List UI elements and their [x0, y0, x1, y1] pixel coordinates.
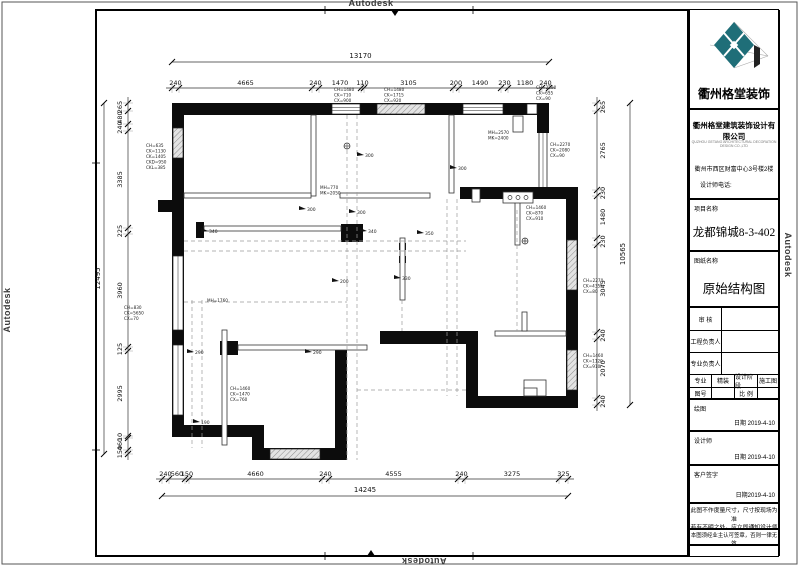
stage-label: 设计阶段 [735, 374, 758, 387]
designer-date: 日期 2019-4-10 [734, 452, 775, 461]
window-label: CK=1715 [384, 93, 404, 98]
watermark-left: Autodesk [2, 280, 12, 340]
beam-label: 300 [458, 166, 467, 172]
dim-text: 4665 [237, 79, 254, 87]
dim-text: 230 [599, 187, 607, 199]
dim-text: 3275 [504, 470, 521, 478]
dim-text: 150 [116, 446, 124, 458]
dim-text: 240 [116, 121, 124, 133]
dim-text: 230 [498, 79, 510, 87]
dim-chain-top: 2404665240147011031052001490230118024013… [166, 52, 555, 93]
signature-table: 审 核 工程负责人 专业负责人 专业 精装 设计阶段 施工图 图号 比 例 [690, 308, 778, 400]
dim-text: 325 [557, 470, 569, 478]
window-label: CX=910 [583, 364, 601, 369]
beam-label: 300 [357, 210, 366, 216]
dim-text: 200 [450, 79, 462, 87]
dim-text: 12495 [94, 267, 102, 289]
window-label: CX=900 [334, 98, 352, 103]
dim-text: 14245 [354, 486, 376, 494]
beam-lines [184, 115, 517, 460]
window-label: CH=2270 [550, 142, 571, 147]
dim-text: 3385 [116, 171, 124, 188]
scale-value [758, 387, 778, 400]
dim-text: 13170 [349, 52, 371, 60]
dim-text: 240 [455, 470, 467, 478]
drawing-name-section: 图纸名称 原始结构图 [690, 252, 778, 308]
watermark-right: Autodesk [783, 225, 793, 285]
designer-label: 设计师 [694, 436, 712, 445]
draft-date: 日期 2019-4-10 [734, 418, 775, 427]
dim-text: 150 [181, 470, 193, 478]
window-label: CX=90 [536, 96, 551, 101]
note-line-3: 本图须经业主认可签章，否则一律无效 [690, 530, 778, 548]
draft-label: 绘图 [694, 404, 706, 413]
window-label: CK=655 [536, 91, 554, 96]
window-label: CH=635 [146, 143, 164, 148]
dim-text: 2995 [116, 385, 124, 402]
dim-text: 110 [356, 79, 368, 87]
window-label: CH=1480 [384, 87, 405, 92]
dim-text: 1470 [332, 79, 349, 87]
dim-text: 2765 [599, 142, 607, 159]
window-label: CKD=950 [146, 160, 167, 165]
window-label: CX=90 [550, 153, 565, 158]
major-label: 专业 [690, 374, 712, 387]
beam-label: 190 [201, 420, 210, 426]
beam-label: 340 [209, 229, 218, 235]
window-label: CH=1460 [526, 205, 547, 210]
stage-value: 施工图 [758, 374, 778, 387]
window-label: CH=1480 [334, 87, 355, 92]
beam-label: 300 [365, 153, 374, 159]
review-label: 审 核 [690, 308, 722, 330]
window-label: CH=2290 [536, 85, 557, 90]
drawing-sheet: 2404665240147011031052001490230118024013… [0, 0, 800, 567]
beam-label: 300 [307, 207, 316, 213]
window-label: CH=2270 [583, 278, 604, 283]
top-border-marker-icon [391, 10, 399, 16]
dim-text: 1180 [517, 79, 534, 87]
dim-text: 3105 [400, 79, 417, 87]
dim-text: 125 [116, 343, 124, 355]
company-address: 衢州市西区财富中心3号楼2楼 [690, 164, 778, 173]
drain-symbol-icon [522, 238, 528, 244]
dim-text: 225 [116, 225, 124, 237]
note-line-1: 此图不作度量尺寸，尺寸按现场为准 [690, 507, 778, 524]
client-sign-section: 客户签字 日期2019-4-10 [690, 466, 778, 504]
designer-section: 设计师 日期 2019-4-10 [690, 432, 778, 466]
company-section: 衢州格堂建筑装饰设计有限公司 QUZHOU GETANG ARCHITECTUR… [690, 110, 778, 200]
dim-chain-left: 2654802403385225396012529951046015012495 [94, 97, 133, 460]
window-label: CK=870 [526, 211, 544, 216]
major-value: 精装 [712, 374, 735, 387]
draft-section: 绘图 日期 2019-4-10 [690, 400, 778, 432]
window-label: MK=2400 [488, 136, 509, 141]
window-label: CK=4355 [583, 284, 603, 289]
window-label: MH=1760 [207, 298, 228, 303]
dim-chain-bottom: 24056015046602404555240327532514245 [156, 470, 574, 499]
brand-name: 衢州格堂装饰 [690, 85, 778, 102]
window-label: CK=1470 [230, 392, 250, 397]
window-label: CX=910 [526, 216, 544, 221]
beam-label: 350 [425, 231, 434, 237]
window-label: CK=2080 [550, 148, 570, 153]
dim-text: 1490 [472, 79, 489, 87]
project-name: 龙都锦城8-3-402 [690, 224, 778, 240]
dim-text: 230 [599, 235, 607, 247]
project-section: 项目名称 龙都锦城8-3-402 [690, 200, 778, 252]
title-block: 衢州格堂装饰 衢州格堂建筑装饰设计有限公司 QUZHOU GETANG ARCH… [688, 10, 780, 556]
window-label: CX=70 [124, 316, 139, 321]
note-section-1: 此图不作度量尺寸，尺寸按现场为准 若有不明之处，应立即通知设计师 [690, 504, 778, 530]
drawing-label: 图纸名称 [694, 256, 718, 265]
window-label: CKL=385 [146, 165, 166, 170]
window-label: CK=1120 [583, 359, 603, 364]
window-label: CK=1405 [146, 154, 166, 159]
dim-text: 240 [599, 329, 607, 341]
pm-label: 工程负责人 [690, 330, 722, 352]
window-label: CH=1460 [230, 386, 251, 391]
lead-label: 专业负责人 [690, 352, 722, 374]
dim-text: 1480 [599, 209, 607, 226]
company-name-en: QUZHOU GETANG ARCHITECTURAL DECORATION D… [690, 140, 778, 148]
drawing-name: 原始结构图 [690, 278, 778, 297]
floor-plan-canvas: 2404665240147011031052001490230118024013… [0, 0, 800, 567]
company-logo [690, 12, 778, 78]
logo-section: 衢州格堂装饰 [690, 10, 778, 110]
window-label: MK=2050 [320, 191, 341, 196]
company-name: 衢州格堂建筑装饰设计有限公司 [690, 120, 778, 142]
dim-text: 240 [169, 79, 181, 87]
beam-label: 290 [195, 350, 204, 356]
client-sign-date: 日期2019-4-10 [736, 490, 775, 499]
dim-text: 265 [599, 101, 607, 113]
bottom-border-marker-icon [367, 550, 375, 556]
dim-text: 3960 [116, 282, 124, 299]
window-label: CH=830 [124, 305, 142, 310]
window-label: MH=770 [320, 185, 339, 190]
window-label: CK=5650 [124, 311, 144, 316]
window-label: CH=1460 [583, 353, 604, 358]
beam-label: 340 [368, 229, 377, 235]
window-label: CX=920 [384, 98, 402, 103]
watermark-bottom: Autodesk [394, 556, 454, 566]
beam-label: 290 [313, 350, 322, 356]
scale-label: 比 例 [735, 387, 758, 400]
window-label: CX=80 [583, 289, 598, 294]
window-label: CX=760 [230, 397, 248, 402]
dim-text: 240 [599, 395, 607, 407]
window-label: CK=1130 [146, 149, 166, 154]
dim-text: 4660 [247, 470, 264, 478]
note-section-2: 本图须经业主认可签章，否则一律无效 [690, 530, 778, 546]
watermark-top: Autodesk [341, 0, 401, 8]
dim-text: 10565 [619, 243, 627, 265]
window-label: MH=2570 [488, 130, 509, 135]
dim-text: 240 [319, 470, 331, 478]
dim-text: 4555 [385, 470, 402, 478]
window-label: CK=710 [334, 93, 352, 98]
dim-text: 240 [309, 79, 321, 87]
client-sign-label: 客户签字 [694, 470, 718, 479]
drawing-no-label: 图号 [690, 387, 712, 400]
drawing-no-value [712, 387, 735, 400]
phone-label: 设计师电话: [700, 180, 732, 189]
project-label: 项目名称 [694, 204, 718, 213]
beam-label: 330 [402, 276, 411, 282]
beam-label: 200 [340, 279, 349, 285]
